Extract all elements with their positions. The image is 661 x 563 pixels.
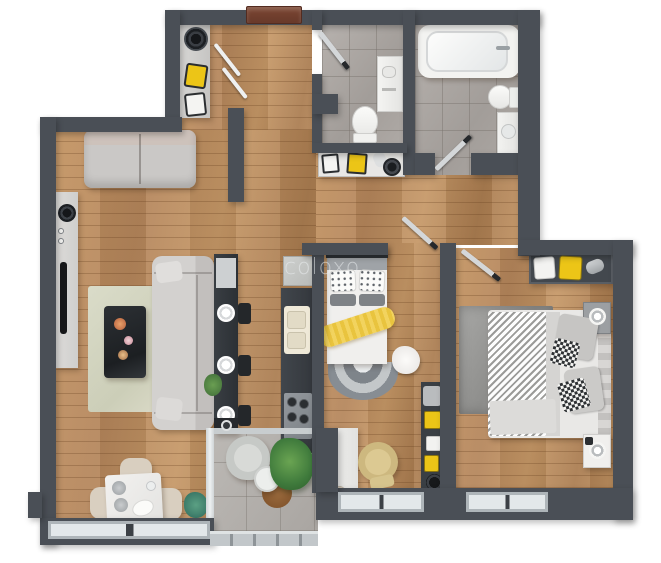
bar-stool	[238, 405, 251, 426]
wall	[316, 428, 338, 492]
wall	[613, 240, 633, 520]
bed1-gray-pillow	[359, 294, 385, 306]
floor-plan: coloxo	[0, 0, 661, 563]
burner-icon	[287, 397, 297, 407]
vanity-handle	[382, 88, 396, 91]
yellow-box	[424, 455, 439, 472]
flower-decor	[118, 350, 128, 360]
wc-toilet-bowl	[352, 106, 378, 136]
flower-decor	[114, 318, 126, 330]
wall	[440, 243, 456, 493]
bed1-gray-pillow	[330, 294, 356, 306]
decor-hat	[383, 158, 401, 176]
wall	[40, 117, 56, 545]
shelf-cushion	[423, 386, 441, 406]
speaker-ring-icon	[221, 420, 232, 431]
flower-decor	[124, 336, 133, 345]
wall	[312, 143, 407, 153]
yellow-box	[424, 411, 441, 429]
wall	[228, 108, 244, 202]
wall	[165, 10, 180, 122]
wall-column	[28, 492, 42, 518]
wc-toilet-tank	[353, 133, 377, 143]
wc-basin	[382, 66, 396, 78]
wc-vanity	[377, 56, 403, 112]
loveseat-cushion-split	[139, 134, 141, 184]
bar-tray	[216, 258, 236, 288]
sink-basin	[287, 332, 306, 349]
tv	[60, 262, 67, 334]
knob-decor	[58, 228, 64, 234]
nightstand-plate	[589, 308, 606, 325]
wall	[312, 10, 322, 30]
wall-stub	[312, 94, 338, 114]
folded-towel-yellow	[558, 255, 582, 280]
white-box	[426, 436, 441, 451]
burner-icon	[299, 414, 309, 424]
sofa-pillow	[155, 260, 184, 283]
watermark-text: coloxo	[284, 255, 384, 281]
window	[48, 521, 210, 539]
decor-plant	[184, 492, 208, 518]
bath-basin	[501, 124, 516, 139]
burner-icon	[287, 412, 297, 422]
bar-plate	[217, 356, 235, 374]
wall	[302, 243, 388, 255]
window	[466, 492, 548, 512]
bar-stool	[238, 355, 251, 376]
bed2-blanket	[489, 399, 556, 435]
white-box	[321, 153, 340, 173]
bar-plate	[217, 304, 235, 322]
faucet-icon	[496, 46, 510, 50]
bar-stool	[238, 303, 251, 324]
sofa-pillow	[155, 396, 183, 421]
yellow-box	[183, 63, 208, 90]
white-box	[184, 92, 207, 117]
wall	[471, 153, 522, 175]
speaker-icon	[58, 204, 76, 222]
burner-icon	[299, 399, 309, 409]
desk-chair-seat	[365, 449, 391, 475]
wall	[415, 153, 435, 175]
balcony-railing	[210, 531, 318, 546]
table-bowl	[146, 481, 156, 491]
table-plate	[112, 481, 126, 495]
decor-hat	[184, 27, 208, 51]
sink-basin	[287, 311, 306, 329]
wall	[165, 10, 540, 25]
fur-pouf	[392, 346, 420, 374]
folded-towel-white	[533, 256, 555, 279]
entrance-door	[246, 6, 302, 24]
sofa-seam	[196, 275, 198, 411]
window	[338, 492, 424, 512]
nightstand-gadget	[585, 437, 593, 445]
armchair-seat	[234, 444, 262, 472]
wall	[40, 117, 182, 132]
potted-plant	[270, 438, 314, 490]
knob-decor	[58, 238, 64, 244]
table-plate	[114, 498, 128, 512]
wall	[518, 10, 540, 256]
yellow-box	[346, 152, 367, 174]
bathtub-basin	[426, 31, 508, 72]
